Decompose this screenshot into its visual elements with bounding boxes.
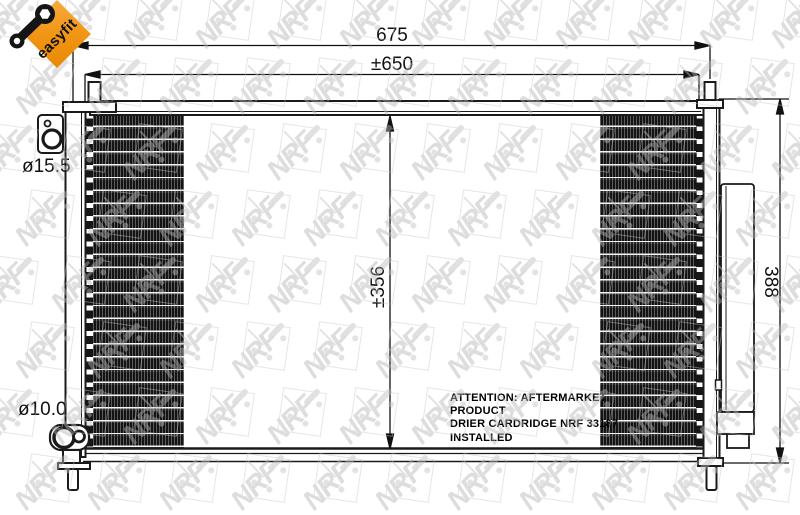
right-header-tank — [697, 82, 723, 458]
left-header-tank — [63, 82, 116, 457]
dim-line-core-height — [387, 116, 394, 449]
drawing-linework — [0, 0, 800, 515]
top-port-bracket — [38, 115, 63, 153]
condenser-technical-drawing: 675 ±650 ±356 388 ø15.5 ø10.0 ATTENTION:… — [0, 0, 800, 515]
bottom-port-fitting — [50, 425, 89, 450]
core-top-bar — [90, 101, 704, 115]
dim-line-overall-width — [73, 42, 710, 102]
easyfit-badge: easyfit — [6, 0, 106, 95]
wrench-icon — [6, 0, 66, 52]
core-bottom-bar — [83, 449, 720, 462]
receiver-drier — [716, 184, 755, 448]
right-bottom-mount-pin — [698, 458, 723, 490]
dim-line-core-width — [85, 71, 699, 101]
